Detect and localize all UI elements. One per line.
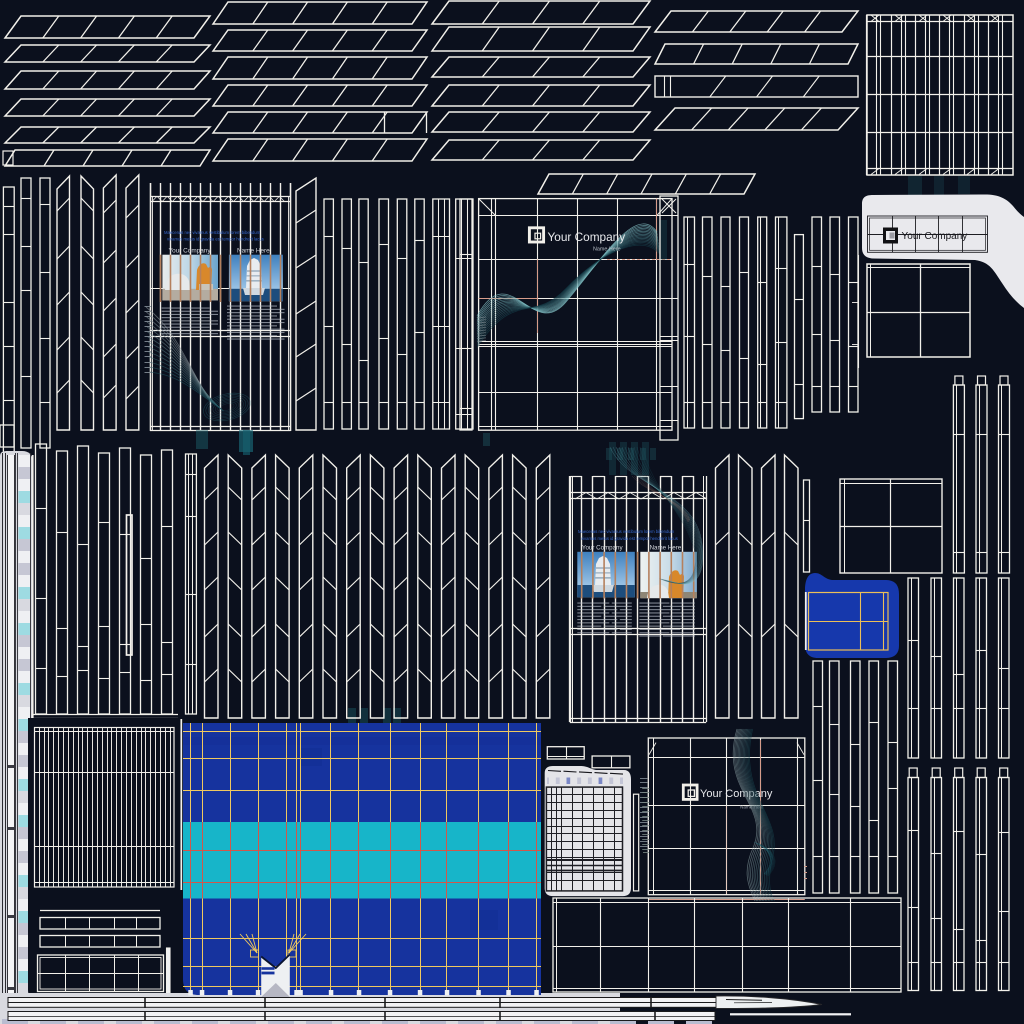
svg-text:Name Here: Name Here — [650, 545, 682, 552]
svg-text:Name Here: Name Here — [593, 247, 621, 253]
svg-text:Your Company: Your Company — [582, 545, 624, 552]
svg-text:Your Company: Your Company — [700, 788, 773, 800]
svg-text:Your Company: Your Company — [548, 230, 626, 244]
svg-text:Maecenas nec vivamus vestibulu: Maecenas nec vivamus vestibulum lorem bi… — [578, 529, 675, 534]
svg-text:Maecenas nec vivamus vestibulu: Maecenas nec vivamus vestibulum lorem bi… — [164, 230, 261, 235]
svg-text:Your Company: Your Company — [902, 231, 968, 242]
svg-text:Your Company: Your Company — [169, 248, 212, 255]
svg-text:vivamus metus id gravida est t: vivamus metus id gravida est tempor hend… — [167, 237, 264, 242]
svg-text:vivamus metus id gravida est t: vivamus metus id gravida est tempor hend… — [581, 536, 678, 541]
svg-text:Name Here: Name Here — [237, 248, 270, 255]
